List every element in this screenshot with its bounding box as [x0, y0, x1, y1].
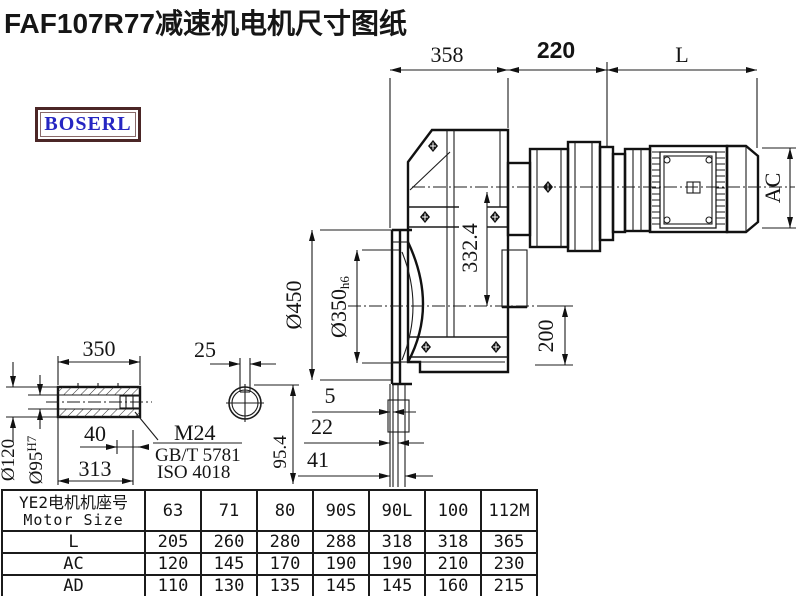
dim-bore-diameter-label: Ø95H7 — [24, 435, 47, 484]
table-header-en: Motor Size — [3, 512, 144, 529]
table-cell: 110 — [145, 575, 201, 596]
table-cell: 145 — [369, 575, 425, 596]
dim-motor-diameter-label: AC — [760, 173, 785, 204]
row-label: AC — [2, 553, 145, 575]
table-header-row: YE2电机机座号 Motor Size 63 71 80 90S 90L 100… — [2, 490, 537, 531]
table-cell: 160 — [425, 575, 481, 596]
oil-plug-icon — [491, 341, 501, 353]
dim-offset-a-label: 5 — [325, 383, 336, 408]
motor-size-table: YE2电机机座号 Motor Size 63 71 80 90S 90L 100… — [1, 489, 538, 596]
dim-adapter-length-label: 220 — [537, 37, 575, 63]
table-row-AD: AD 110 130 135 145 145 160 215 — [2, 575, 537, 596]
dim-axis-height-label: 332.4 — [457, 223, 482, 273]
table-cell: 365 — [481, 531, 537, 553]
table-cell: 145 — [201, 553, 257, 575]
thread-spec-label: M24 — [174, 420, 216, 445]
dim-offset-b-label: 22 — [311, 414, 333, 439]
motor-size-column: 80 — [257, 490, 313, 531]
dim-sleeve-length-label: 350 — [83, 336, 116, 361]
table-cell: 170 — [257, 553, 313, 575]
dim-spigot-diameter-label: Ø350h6 — [326, 276, 352, 338]
dim-output-center-height-label: 200 — [533, 320, 558, 353]
dim-motor-length-label: L — [675, 42, 688, 67]
iso-standard-label: ISO 4018 — [157, 462, 230, 483]
table-cell: 130 — [201, 575, 257, 596]
output-flange — [388, 230, 423, 487]
fan-cowl — [727, 146, 758, 232]
table-cell: 280 — [257, 531, 313, 553]
dim-flange-diameter-label: Ø450 — [281, 281, 306, 330]
drawing-sheet: FAF107R77减速机电机尺寸图纸 BOSERL — [0, 0, 800, 596]
dim-axis-height: 332.4 — [457, 192, 487, 306]
dim-offset-c-label: 41 — [307, 447, 329, 472]
motor-size-column: 90L — [369, 490, 425, 531]
dim-sleeve-od-label: Ø120 — [0, 439, 19, 481]
table-cell: 135 — [257, 575, 313, 596]
dim-flange-offsets: 5 22 41 — [298, 383, 433, 476]
motor-size-column: 71 — [201, 490, 257, 531]
dim-hub-length-label: 313 — [79, 456, 112, 481]
oil-plug-icon — [490, 211, 500, 223]
table-cell: 190 — [313, 553, 369, 575]
table-cell: 190 — [369, 553, 425, 575]
motor-size-column: 90S — [313, 490, 369, 531]
dim-thread-length-label: 40 — [84, 421, 106, 446]
motor-size-column: 100 — [425, 490, 481, 531]
table-cell: 318 — [425, 531, 481, 553]
dim-flange-diameters: Ø450 Ø350h6 — [281, 230, 400, 380]
table-row-L: L 205 260 280 288 318 318 365 — [2, 531, 537, 553]
motor-size-column: 63 — [145, 490, 201, 531]
row-label: L — [2, 531, 145, 553]
table-cell: 210 — [425, 553, 481, 575]
dim-motor-diameter: AC — [760, 148, 796, 228]
dim-housing-width-label: 358 — [431, 42, 464, 67]
table-cell: 230 — [481, 553, 537, 575]
oil-plug-icon — [421, 341, 431, 353]
row-label: AD — [2, 575, 145, 596]
table-cell: 260 — [201, 531, 257, 553]
table-header-cn: YE2电机机座号 — [3, 493, 144, 512]
oil-plug-icon — [428, 140, 438, 152]
table-cell: 318 — [369, 531, 425, 553]
table-cell: 215 — [481, 575, 537, 596]
table-cell: 288 — [313, 531, 369, 553]
table-cell: 145 — [313, 575, 369, 596]
table-row-AC: AC 120 145 170 190 190 210 230 — [2, 553, 537, 575]
dim-keyway-depth-label: 95.4 — [270, 435, 291, 469]
oil-plug-icon — [420, 211, 430, 223]
table-cell: 205 — [145, 531, 201, 553]
motor-size-column: 112M — [481, 490, 537, 531]
input-stage-housing — [502, 142, 625, 307]
table-header-cell: YE2电机机座号 Motor Size — [2, 490, 145, 531]
table-cell: 120 — [145, 553, 201, 575]
dim-output-center-height: 200 — [348, 306, 573, 365]
dim-keyway-width-label: 25 — [194, 337, 216, 362]
